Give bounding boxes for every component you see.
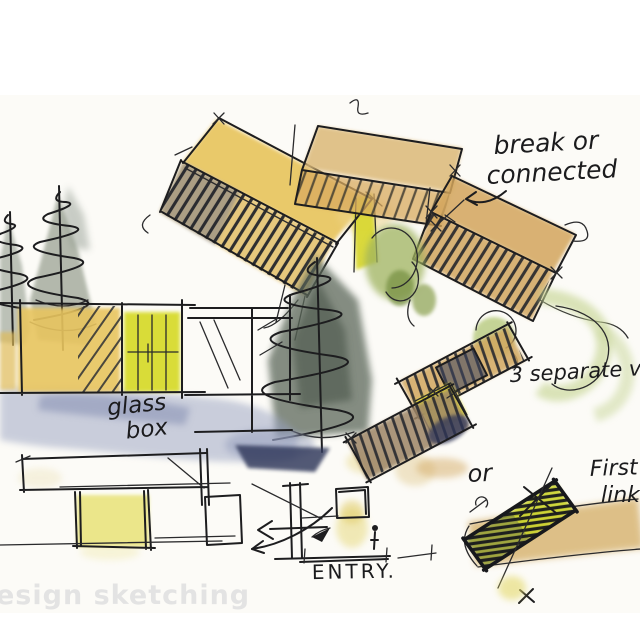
watermark: esign sketching — [0, 580, 250, 611]
entry-label: ENTRY. — [312, 559, 397, 584]
sketch-canvas: glass box ENTRY. — [0, 0, 640, 640]
sketch-page: glass box ENTRY. — [0, 0, 640, 640]
navy-shadow-patch — [235, 445, 330, 472]
first-link-line1: First — [589, 455, 639, 482]
entry-label-text: ENTRY. — [312, 559, 397, 584]
glass-box-label-line2: box — [124, 414, 169, 444]
first-link-line2: link — [601, 483, 640, 508]
break-or-line1: break or — [493, 125, 601, 160]
or-label: or — [467, 459, 495, 488]
